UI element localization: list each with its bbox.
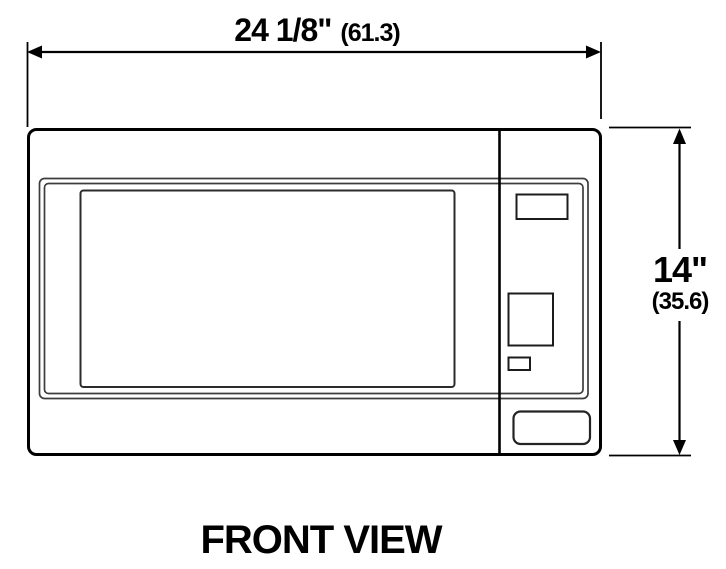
control-small-button (509, 358, 531, 371)
width-imperial-value: 24 1/8" (234, 12, 331, 49)
width-metric-value: (61.3) (340, 19, 399, 48)
width-dimension-label: 24 1/8" (61.3) (27, 12, 607, 49)
height-metric-value: (35.6) (616, 289, 726, 314)
height-dimension-label: 14" (35.6) (616, 251, 726, 314)
control-keypad (509, 294, 554, 346)
diagram-canvas: 24 1/8" (61.3) 14" (35.6) FRONT VIEW (0, 0, 726, 569)
arrowhead-up-icon (673, 129, 686, 145)
view-title: FRONT VIEW (34, 518, 608, 563)
door-release-button (514, 412, 591, 445)
height-imperial-value: 14" (616, 251, 726, 289)
door-frame-outer (40, 179, 589, 399)
arrowhead-down-icon (673, 440, 686, 455)
door-window (81, 191, 455, 388)
door-frame-inner (45, 184, 584, 394)
control-display (517, 195, 568, 220)
